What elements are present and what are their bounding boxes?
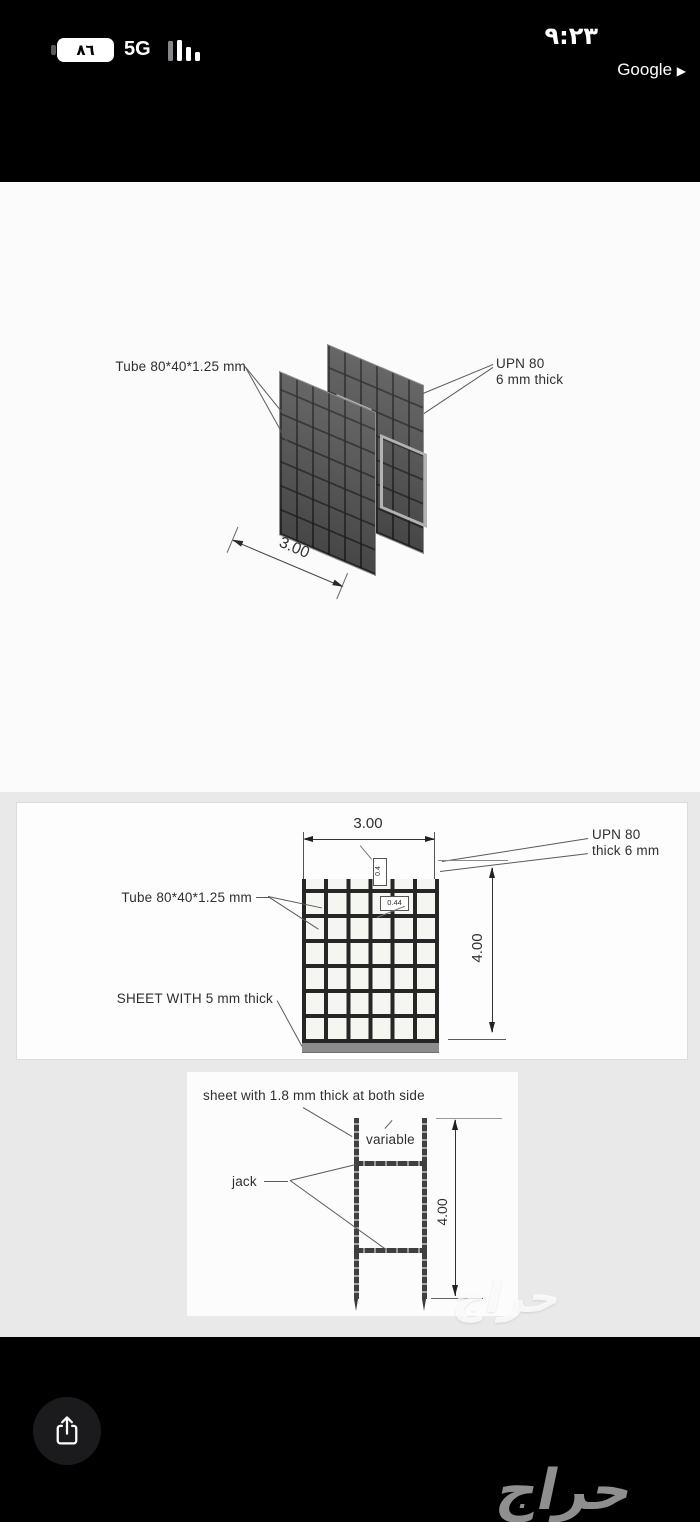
dim-arrow-down <box>489 1022 495 1033</box>
jack-bar-upper <box>354 1161 427 1166</box>
side-sheet-label: sheet with 1.8 mm thick at both side <box>203 1088 425 1103</box>
bottom-sheet-bar <box>302 1043 439 1053</box>
dim-arrow-left <box>303 836 313 842</box>
phone-screen: ٨٦ 5G ٩:٢٣ Google ▶ Tube 80*40*1.25 mm <box>0 0 700 1522</box>
jack-bar-lower <box>354 1248 427 1253</box>
watermark-logo: حراج <box>491 1458 640 1522</box>
network-type-label: 5G <box>124 38 151 61</box>
front-height-dim-text: 4.00 <box>470 928 486 968</box>
front-upn-label: UPN 80 thick 6 mm <box>592 827 659 859</box>
share-button[interactable] <box>33 1397 101 1465</box>
dim-arrow-up <box>489 867 495 878</box>
back-to-app-button[interactable]: Google ▶ <box>596 60 686 80</box>
front-width-dim-text: 3.00 <box>342 815 394 832</box>
status-bar: ٨٦ 5G ٩:٢٣ Google ▶ <box>0 0 700 90</box>
iso-drawing-section: Tube 80*40*1.25 mm UPN 80 6 mm thick 3.0… <box>0 182 700 792</box>
jack-label: jack <box>232 1174 257 1189</box>
gray-backdrop: 3.00 0.4 0.44 Tube 80*40*1.25 mm <box>0 792 700 1337</box>
play-arrow-icon: ▶ <box>677 64 686 78</box>
battery-icon: ٨٦ <box>57 38 114 62</box>
iso-tube-label: Tube 80*40*1.25 mm <box>100 359 246 374</box>
battery-nub <box>51 45 56 55</box>
mesh-grid-front <box>302 879 439 1043</box>
front-tube-label: Tube 80*40*1.25 mm <box>90 890 252 905</box>
small-dim-v-text: 0.4 <box>372 861 386 881</box>
watermark-faint: حراج <box>450 1272 567 1323</box>
iso-upn-label: UPN 80 6 mm thick <box>496 356 563 388</box>
back-to-app-label: Google <box>617 60 672 79</box>
sheet-bar-left <box>354 1118 359 1299</box>
dim-arrow-right <box>425 836 435 842</box>
battery-percent: ٨٦ <box>76 41 94 59</box>
leader-line <box>424 367 494 414</box>
share-icon <box>49 1413 85 1449</box>
leader-line <box>244 366 283 413</box>
sheet-bar-right <box>422 1118 427 1299</box>
clock-label: ٩:٢٣ <box>536 22 598 50</box>
signal-bars-icon <box>168 38 204 62</box>
photo-viewer[interactable]: Tube 80*40*1.25 mm UPN 80 6 mm thick 3.0… <box>0 182 700 1337</box>
front-sheet-label: SHEET WITH 5 mm thick <box>108 991 273 1006</box>
variable-label: variable <box>366 1132 415 1147</box>
side-height-dim-text: 4.00 <box>434 1192 450 1232</box>
